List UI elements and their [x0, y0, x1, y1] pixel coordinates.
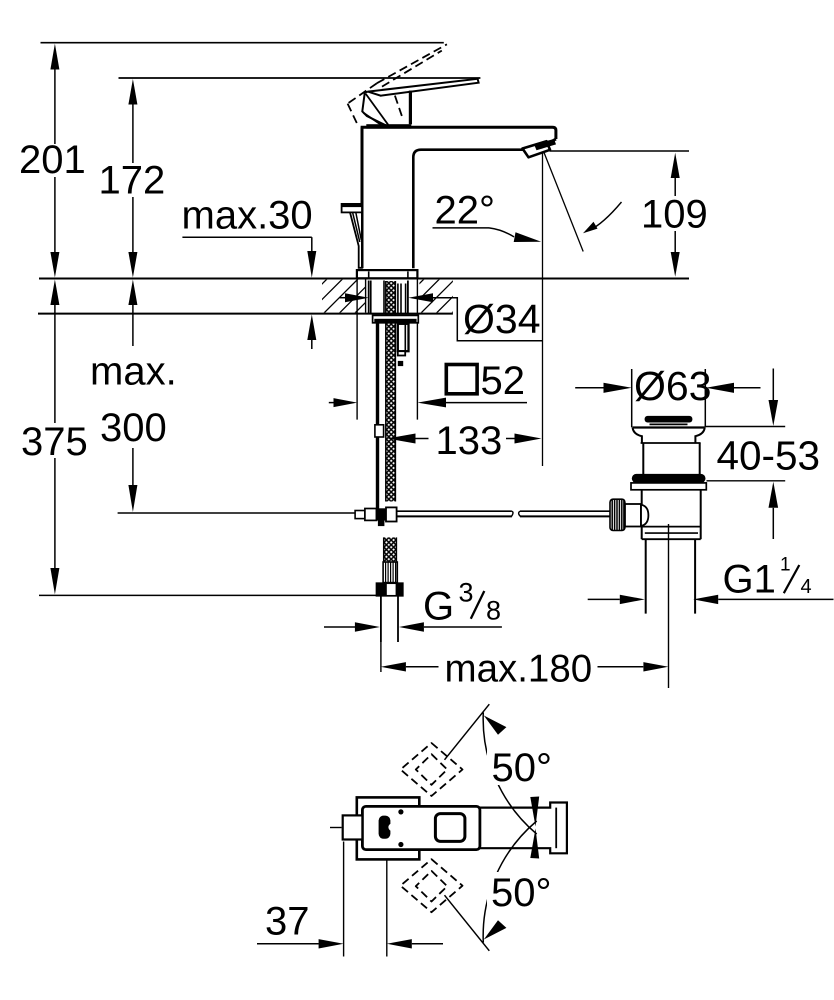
svg-text:201: 201 [19, 138, 86, 182]
svg-text:G: G [423, 585, 454, 629]
svg-text:max.180: max.180 [445, 648, 593, 691]
svg-text:50°: 50° [491, 871, 552, 915]
svg-text:37: 37 [265, 899, 310, 943]
svg-text:172: 172 [99, 159, 166, 203]
svg-text:300: 300 [100, 406, 167, 450]
svg-text:50°: 50° [492, 746, 553, 790]
svg-text:8: 8 [486, 595, 501, 625]
svg-text:52: 52 [481, 359, 526, 403]
svg-text:3: 3 [459, 577, 474, 607]
svg-text:40-53: 40-53 [717, 433, 821, 479]
svg-text:1: 1 [780, 555, 791, 576]
svg-text:4: 4 [801, 576, 812, 598]
svg-text:max.: max. [90, 350, 177, 394]
svg-text:max.30: max.30 [182, 194, 313, 238]
svg-text:Ø63: Ø63 [634, 363, 712, 409]
svg-text:G1: G1 [723, 558, 776, 602]
svg-text:22°: 22° [435, 189, 496, 233]
svg-text:133: 133 [436, 419, 503, 463]
svg-text:Ø34: Ø34 [463, 296, 541, 342]
svg-text:109: 109 [641, 193, 708, 237]
svg-text:375: 375 [21, 420, 88, 464]
